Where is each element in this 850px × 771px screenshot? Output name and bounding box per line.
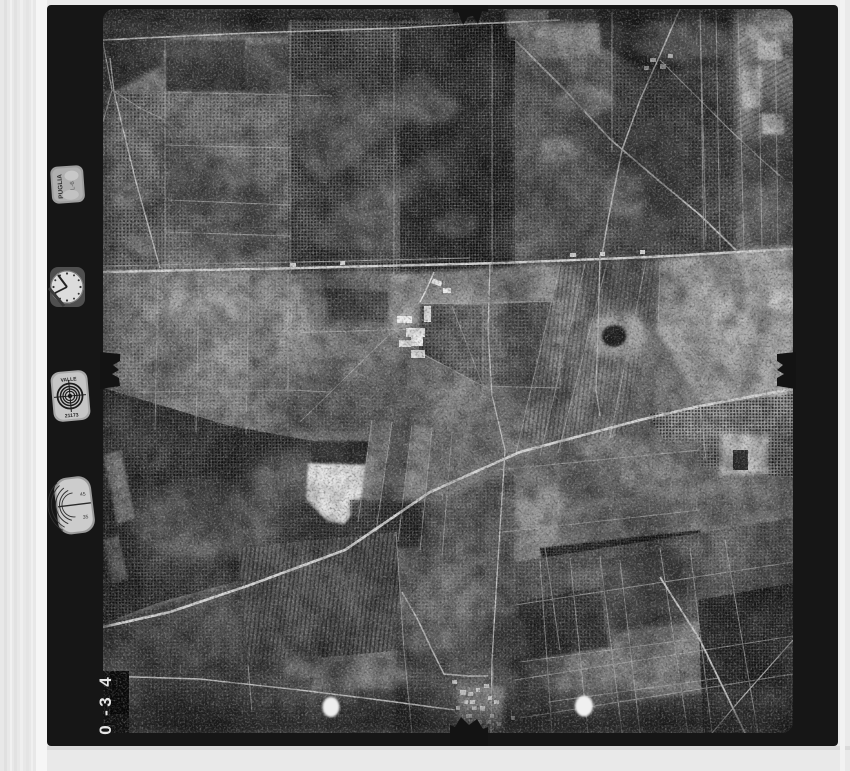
svg-text:3: 3 [96, 697, 115, 706]
svg-text:L-6: L-6 [70, 180, 77, 190]
svg-text:21173: 21173 [65, 412, 79, 419]
svg-text:0: 0 [96, 725, 115, 734]
svg-text:-: - [96, 710, 115, 716]
svg-text:45: 45 [80, 491, 86, 498]
svg-text:35: 35 [82, 514, 88, 521]
svg-text:4: 4 [96, 677, 115, 687]
